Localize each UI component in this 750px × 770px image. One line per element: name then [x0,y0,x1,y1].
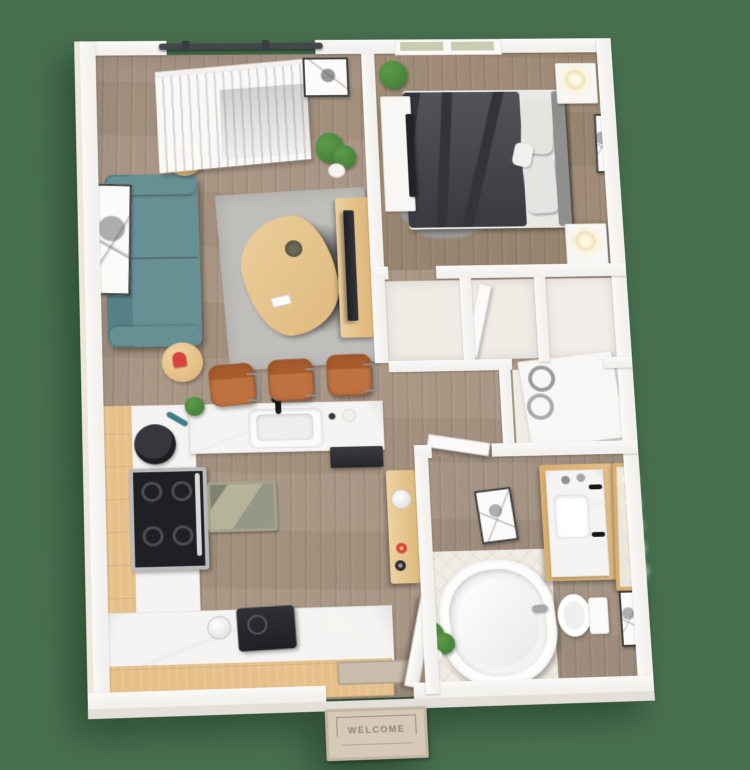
blinds-shade-overlay [220,83,310,160]
stool-frame-3 [363,363,376,391]
dishwasher [330,446,384,468]
entry-interior-mat [337,659,414,685]
vanity-faucet-2 [592,532,606,537]
kitchen-mat [207,481,278,533]
kitchen-soap-dot [328,413,335,420]
floor-plan: WELCOME [74,38,658,763]
vanity-faucet-1 [589,484,603,489]
nightstand-bottom-lamp [575,231,597,251]
nightstand-top-lamp [564,70,586,90]
wall-hall-south-right [603,356,632,368]
bedroom-window-pane-1 [400,42,444,51]
bed-duvet [402,92,526,228]
scene-background: WELCOME [0,0,750,750]
vanity-bottle-2 [576,473,585,482]
bedroom-plant [378,61,408,90]
living-plant-pot [328,163,346,178]
vanity-sink [553,494,590,539]
wall-art-living-north [302,57,349,97]
balcony-track-bracket-1 [182,41,190,52]
welcome-mat: WELCOME [325,706,429,761]
bedroom-window-pane-2 [451,42,495,51]
closet-floor-b [545,278,616,358]
toilet-tank [588,597,610,634]
kitchen-sink-basin [256,413,314,441]
stool-frame-1 [247,373,260,402]
stool-frame-2 [305,368,318,396]
vanity-bottle-1 [561,476,570,485]
welcome-mat-border: WELCOME [336,714,418,745]
welcome-mat-text: WELCOME [348,724,406,736]
balcony-track-bracket-2 [262,40,270,51]
